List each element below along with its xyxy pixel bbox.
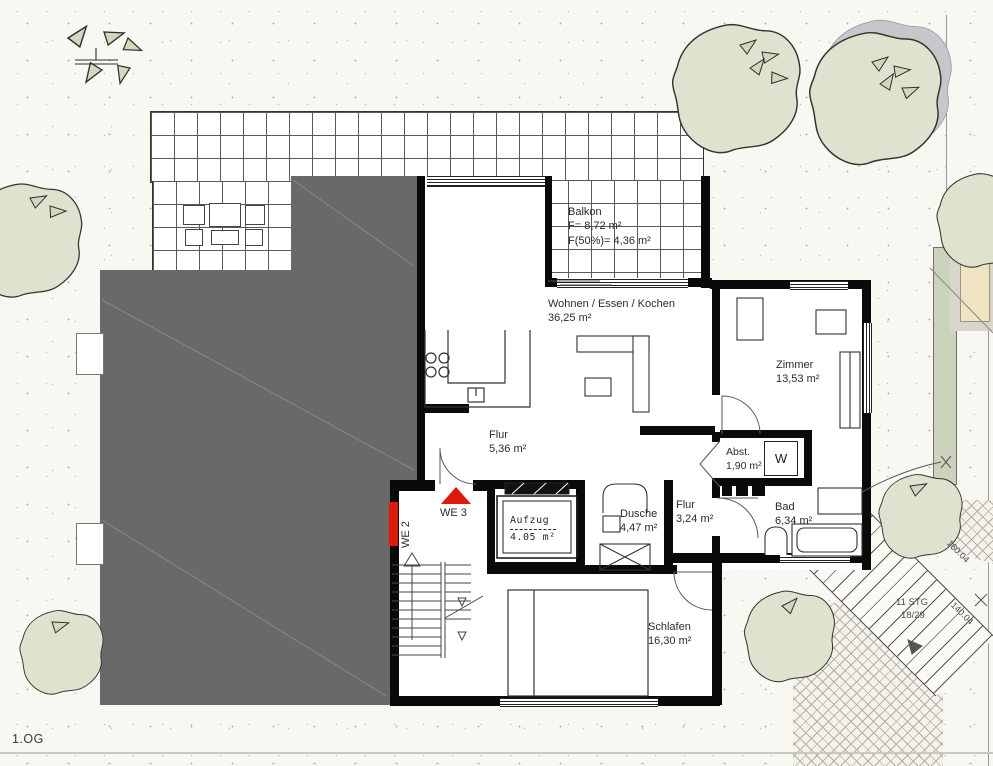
wall-segment bbox=[712, 556, 722, 705]
room-area: 4,47 m² bbox=[620, 521, 657, 535]
building-mass-upper bbox=[291, 176, 417, 272]
chair bbox=[183, 205, 205, 225]
wall-segment bbox=[545, 176, 552, 280]
tree-shadow-icon bbox=[819, 20, 951, 153]
room-name: Abst. bbox=[726, 446, 762, 460]
wall-segment bbox=[417, 176, 425, 480]
window bbox=[790, 281, 848, 290]
wall-segment bbox=[701, 176, 710, 288]
entry-marker-we2 bbox=[389, 502, 398, 546]
room-label-flur2: Flur 3,24 m² bbox=[676, 498, 713, 527]
wall-segment bbox=[712, 288, 720, 395]
tree-icon bbox=[0, 184, 82, 297]
room-label-bad: Bad 6,34 m² bbox=[775, 500, 812, 529]
washing-machine-box: W bbox=[764, 441, 798, 476]
floor-level-label: 1.OG bbox=[12, 732, 44, 746]
property-boundary-line-top bbox=[946, 15, 947, 247]
wall-segment bbox=[487, 480, 495, 570]
room-name: Aufzug bbox=[510, 513, 556, 530]
unit-label-we2: WE 2 bbox=[400, 521, 412, 548]
window bbox=[780, 554, 850, 563]
wall-segment bbox=[487, 480, 584, 489]
sheet-divider-line bbox=[0, 752, 993, 754]
room-name: Schlafen bbox=[648, 620, 691, 634]
window bbox=[557, 279, 688, 288]
room-label-aufzug: Aufzug 4.05 m² bbox=[510, 513, 556, 545]
entry-marker-we3 bbox=[441, 487, 471, 504]
room-label-dusche: Dusche 4,47 m² bbox=[620, 507, 657, 536]
room-label-balkon: Balkon F= 8,72 m² F(50%)= 4,36 m² bbox=[568, 205, 651, 248]
washing-machine-label: W bbox=[775, 451, 787, 466]
room-area: 13,53 m² bbox=[776, 372, 819, 386]
room-name: Zimmer bbox=[776, 358, 819, 372]
room-name: Wohnen / Essen / Kochen bbox=[548, 297, 675, 311]
room-label-schlafen: Schlafen 16,30 m² bbox=[648, 620, 691, 649]
window bbox=[863, 323, 872, 413]
wall-segment bbox=[640, 426, 715, 435]
table bbox=[209, 203, 241, 227]
shrub-symbol-icon bbox=[66, 26, 141, 83]
room-name: Dusche bbox=[620, 507, 657, 521]
window bbox=[427, 176, 545, 187]
room-area-50: F(50%)= 4,36 m² bbox=[568, 234, 651, 248]
room-hall-strip bbox=[417, 404, 712, 482]
room-area: 36,25 m² bbox=[548, 311, 675, 325]
floor-plan-sheet: W bbox=[0, 0, 993, 766]
room-name: Flur bbox=[676, 498, 713, 512]
building-mass-main bbox=[100, 270, 417, 480]
room-area: F= 8,72 m² bbox=[568, 219, 651, 233]
window bbox=[500, 698, 658, 707]
room-area: 5,36 m² bbox=[489, 442, 526, 456]
wall-segment bbox=[720, 430, 812, 438]
room-label-abst: Abst. 1,90 m² bbox=[726, 446, 762, 473]
room-label-wohnen: Wohnen / Essen / Kochen 36,25 m² bbox=[548, 297, 675, 326]
chair bbox=[185, 229, 203, 246]
wall-segment bbox=[545, 278, 557, 287]
planter-bed bbox=[960, 256, 990, 322]
tree-icon bbox=[20, 611, 103, 695]
chair bbox=[245, 205, 265, 225]
wall-segment bbox=[417, 404, 469, 413]
chair bbox=[245, 229, 263, 246]
room-area: 3,24 m² bbox=[676, 512, 713, 526]
neighbour-furniture bbox=[183, 203, 265, 247]
wall-segment bbox=[712, 478, 812, 486]
stair-ratio-label: 18/29 bbox=[901, 610, 925, 621]
room-area: 4.05 m² bbox=[510, 530, 556, 545]
room-name: Flur bbox=[489, 428, 526, 442]
stair-count-label: 11 STG bbox=[896, 597, 928, 608]
wall-segment bbox=[688, 278, 712, 287]
room-name: Bad bbox=[775, 500, 812, 514]
neighbour-bay-window bbox=[76, 333, 104, 375]
building-mass-lower bbox=[100, 480, 390, 705]
room-area: 6,34 m² bbox=[775, 514, 812, 528]
roof-grid-band bbox=[150, 111, 704, 183]
wall-segment bbox=[576, 480, 585, 570]
room-name: Balkon bbox=[568, 205, 651, 219]
wall-segment bbox=[487, 565, 677, 574]
room-label-flur: Flur 5,36 m² bbox=[489, 428, 526, 457]
room-area: 16,30 m² bbox=[648, 634, 691, 648]
table bbox=[211, 230, 239, 245]
neighbour-bay-window bbox=[76, 523, 104, 565]
room-area: 1,90 m² bbox=[726, 460, 762, 474]
unit-label-we3: WE 3 bbox=[440, 506, 467, 520]
room-label-zimmer: Zimmer 13,53 m² bbox=[776, 358, 819, 387]
room-dining-area bbox=[425, 176, 545, 280]
tree-icon bbox=[810, 33, 941, 165]
